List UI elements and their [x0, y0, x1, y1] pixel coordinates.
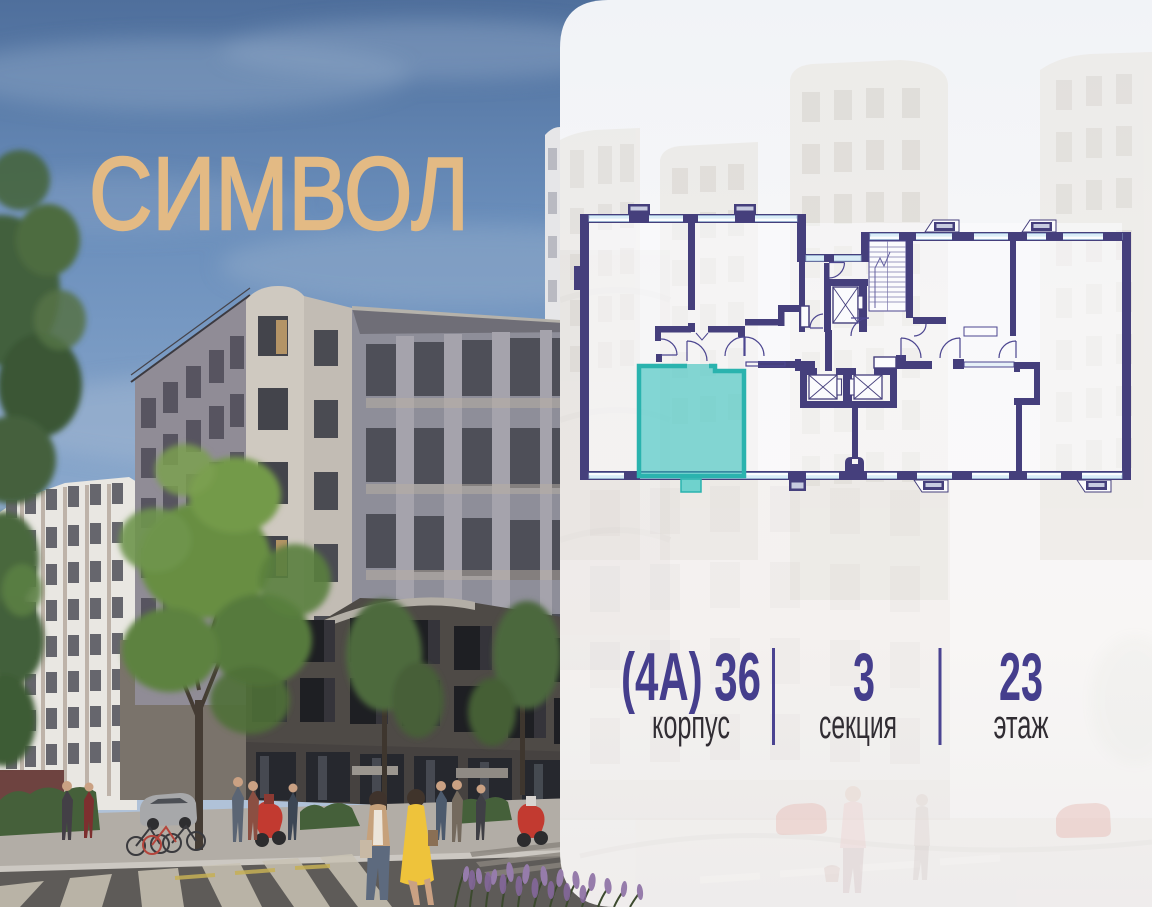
svg-text:этаж: этаж	[994, 703, 1049, 747]
svg-text:корпус: корпус	[652, 703, 730, 747]
svg-text:СИМВОЛ: СИМВОЛ	[89, 136, 469, 251]
svg-text:секция: секция	[819, 703, 897, 747]
